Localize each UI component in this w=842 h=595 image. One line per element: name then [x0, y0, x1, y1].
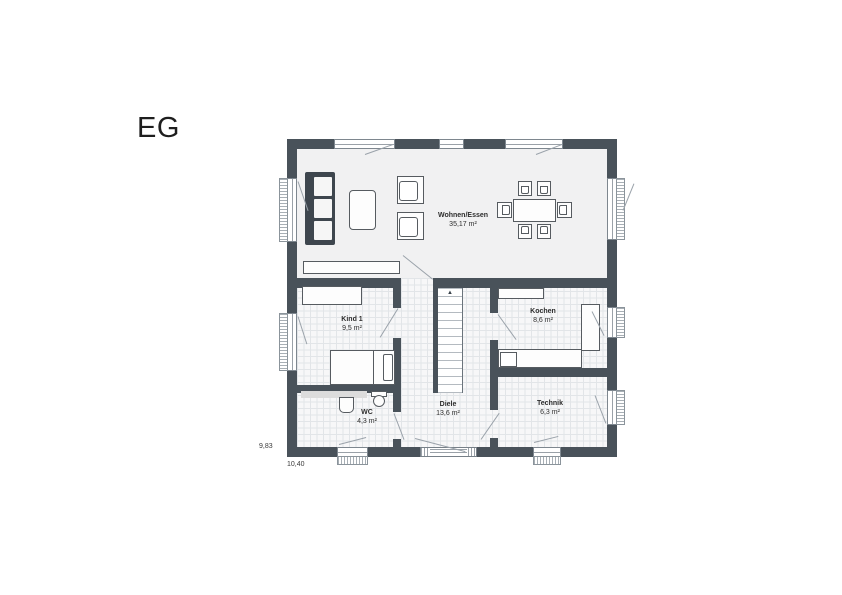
dining-table	[513, 199, 556, 222]
window-sill-technik-right	[616, 390, 625, 425]
window-sill-kind-left	[279, 313, 288, 371]
room-area: 9,5 m²	[341, 324, 362, 333]
room-name: Kochen	[530, 307, 556, 316]
toilet-bowl	[373, 395, 385, 407]
dining-chair	[537, 224, 551, 239]
armchair	[397, 212, 424, 240]
window-sill-kitchen-right	[616, 307, 625, 338]
dining-chair	[557, 202, 572, 218]
sofa-cushion	[314, 221, 332, 240]
dimension-height: 9,83	[259, 443, 273, 450]
room-area: 35,17 m²	[438, 220, 488, 229]
sideboard	[303, 261, 400, 274]
wall-wc-diele-upper	[393, 393, 401, 412]
wall-kitchen-diele-upper	[490, 288, 498, 313]
wall-wc-diele-lower	[393, 439, 401, 447]
sofa-cushion	[314, 199, 332, 218]
room-label-technik: Technik 6,3 m²	[537, 399, 563, 418]
sofa-cushion	[314, 177, 332, 196]
room-area: 6,3 m²	[537, 408, 563, 417]
window-sill-wc-bottom	[337, 456, 368, 465]
room-label-diele: Diele 13,6 m²	[436, 400, 460, 419]
window-sill-technik-bottom	[533, 456, 561, 465]
kitchen-sink	[500, 352, 517, 367]
dimension-width: 10,40	[287, 461, 305, 468]
window-living-left	[287, 178, 297, 242]
sofa	[305, 172, 335, 245]
staircase: ▲	[438, 288, 463, 393]
window-kind-left	[287, 313, 297, 371]
dining-chair	[497, 202, 512, 218]
bed-pillow	[383, 354, 393, 381]
entrance-door-jamb-right	[468, 448, 476, 456]
window-living-top-center	[439, 139, 464, 149]
window-sill-living-left	[279, 178, 288, 242]
kitchen-counter-bottom	[498, 349, 582, 368]
wall-technik-diele-upper	[490, 377, 498, 410]
chair-seat	[521, 226, 529, 234]
bed	[330, 350, 395, 385]
bed-divider	[373, 351, 374, 384]
wall-technik-diele-lower	[490, 438, 498, 447]
coffee-table	[349, 190, 376, 230]
floor-title: EG	[137, 112, 180, 145]
room-area: 4,3 m²	[357, 417, 377, 426]
room-name: Diele	[436, 400, 460, 409]
chair-seat	[521, 186, 529, 194]
wardrobe	[302, 286, 362, 305]
entrance-door	[420, 447, 477, 457]
chair-seat	[540, 226, 548, 234]
kitchen-counter-top	[498, 288, 544, 299]
wall-kind-diele-upper	[393, 288, 401, 308]
chair-seat	[559, 205, 567, 215]
armchair	[397, 176, 424, 204]
room-label-wc: WC 4,3 m²	[357, 408, 377, 427]
chair-seat	[540, 186, 548, 194]
room-label-kochen: Kochen 8,6 m²	[530, 307, 556, 326]
floor-plan: ▲	[287, 139, 617, 457]
dining-chair	[518, 224, 532, 239]
armchair-cushion	[399, 217, 418, 237]
floor-plan-page: EG	[0, 0, 842, 595]
wall-kitchen-technik	[490, 368, 607, 377]
room-name: Kind 1	[341, 315, 362, 324]
room-name: WC	[357, 408, 377, 417]
chair-seat	[502, 205, 510, 215]
wall-living-kitchen	[433, 278, 607, 288]
entrance-door-jamb-left	[421, 448, 429, 456]
room-label-wohnen-essen: Wohnen/Essen 35,17 m²	[438, 211, 488, 230]
dining-chair	[537, 181, 551, 196]
room-area: 13,6 m²	[436, 409, 460, 418]
room-name: Wohnen/Essen	[438, 211, 488, 220]
armchair-cushion	[399, 181, 418, 201]
room-label-kind-1: Kind 1 9,5 m²	[341, 315, 362, 334]
wall-kitchen-diele-lower	[490, 340, 498, 368]
stairs-up-arrow-icon: ▲	[447, 290, 453, 296]
wc-counter	[301, 391, 367, 398]
dining-chair	[518, 181, 532, 196]
room-name: Technik	[537, 399, 563, 408]
room-area: 8,6 m²	[530, 316, 556, 325]
washbasin	[339, 397, 354, 413]
